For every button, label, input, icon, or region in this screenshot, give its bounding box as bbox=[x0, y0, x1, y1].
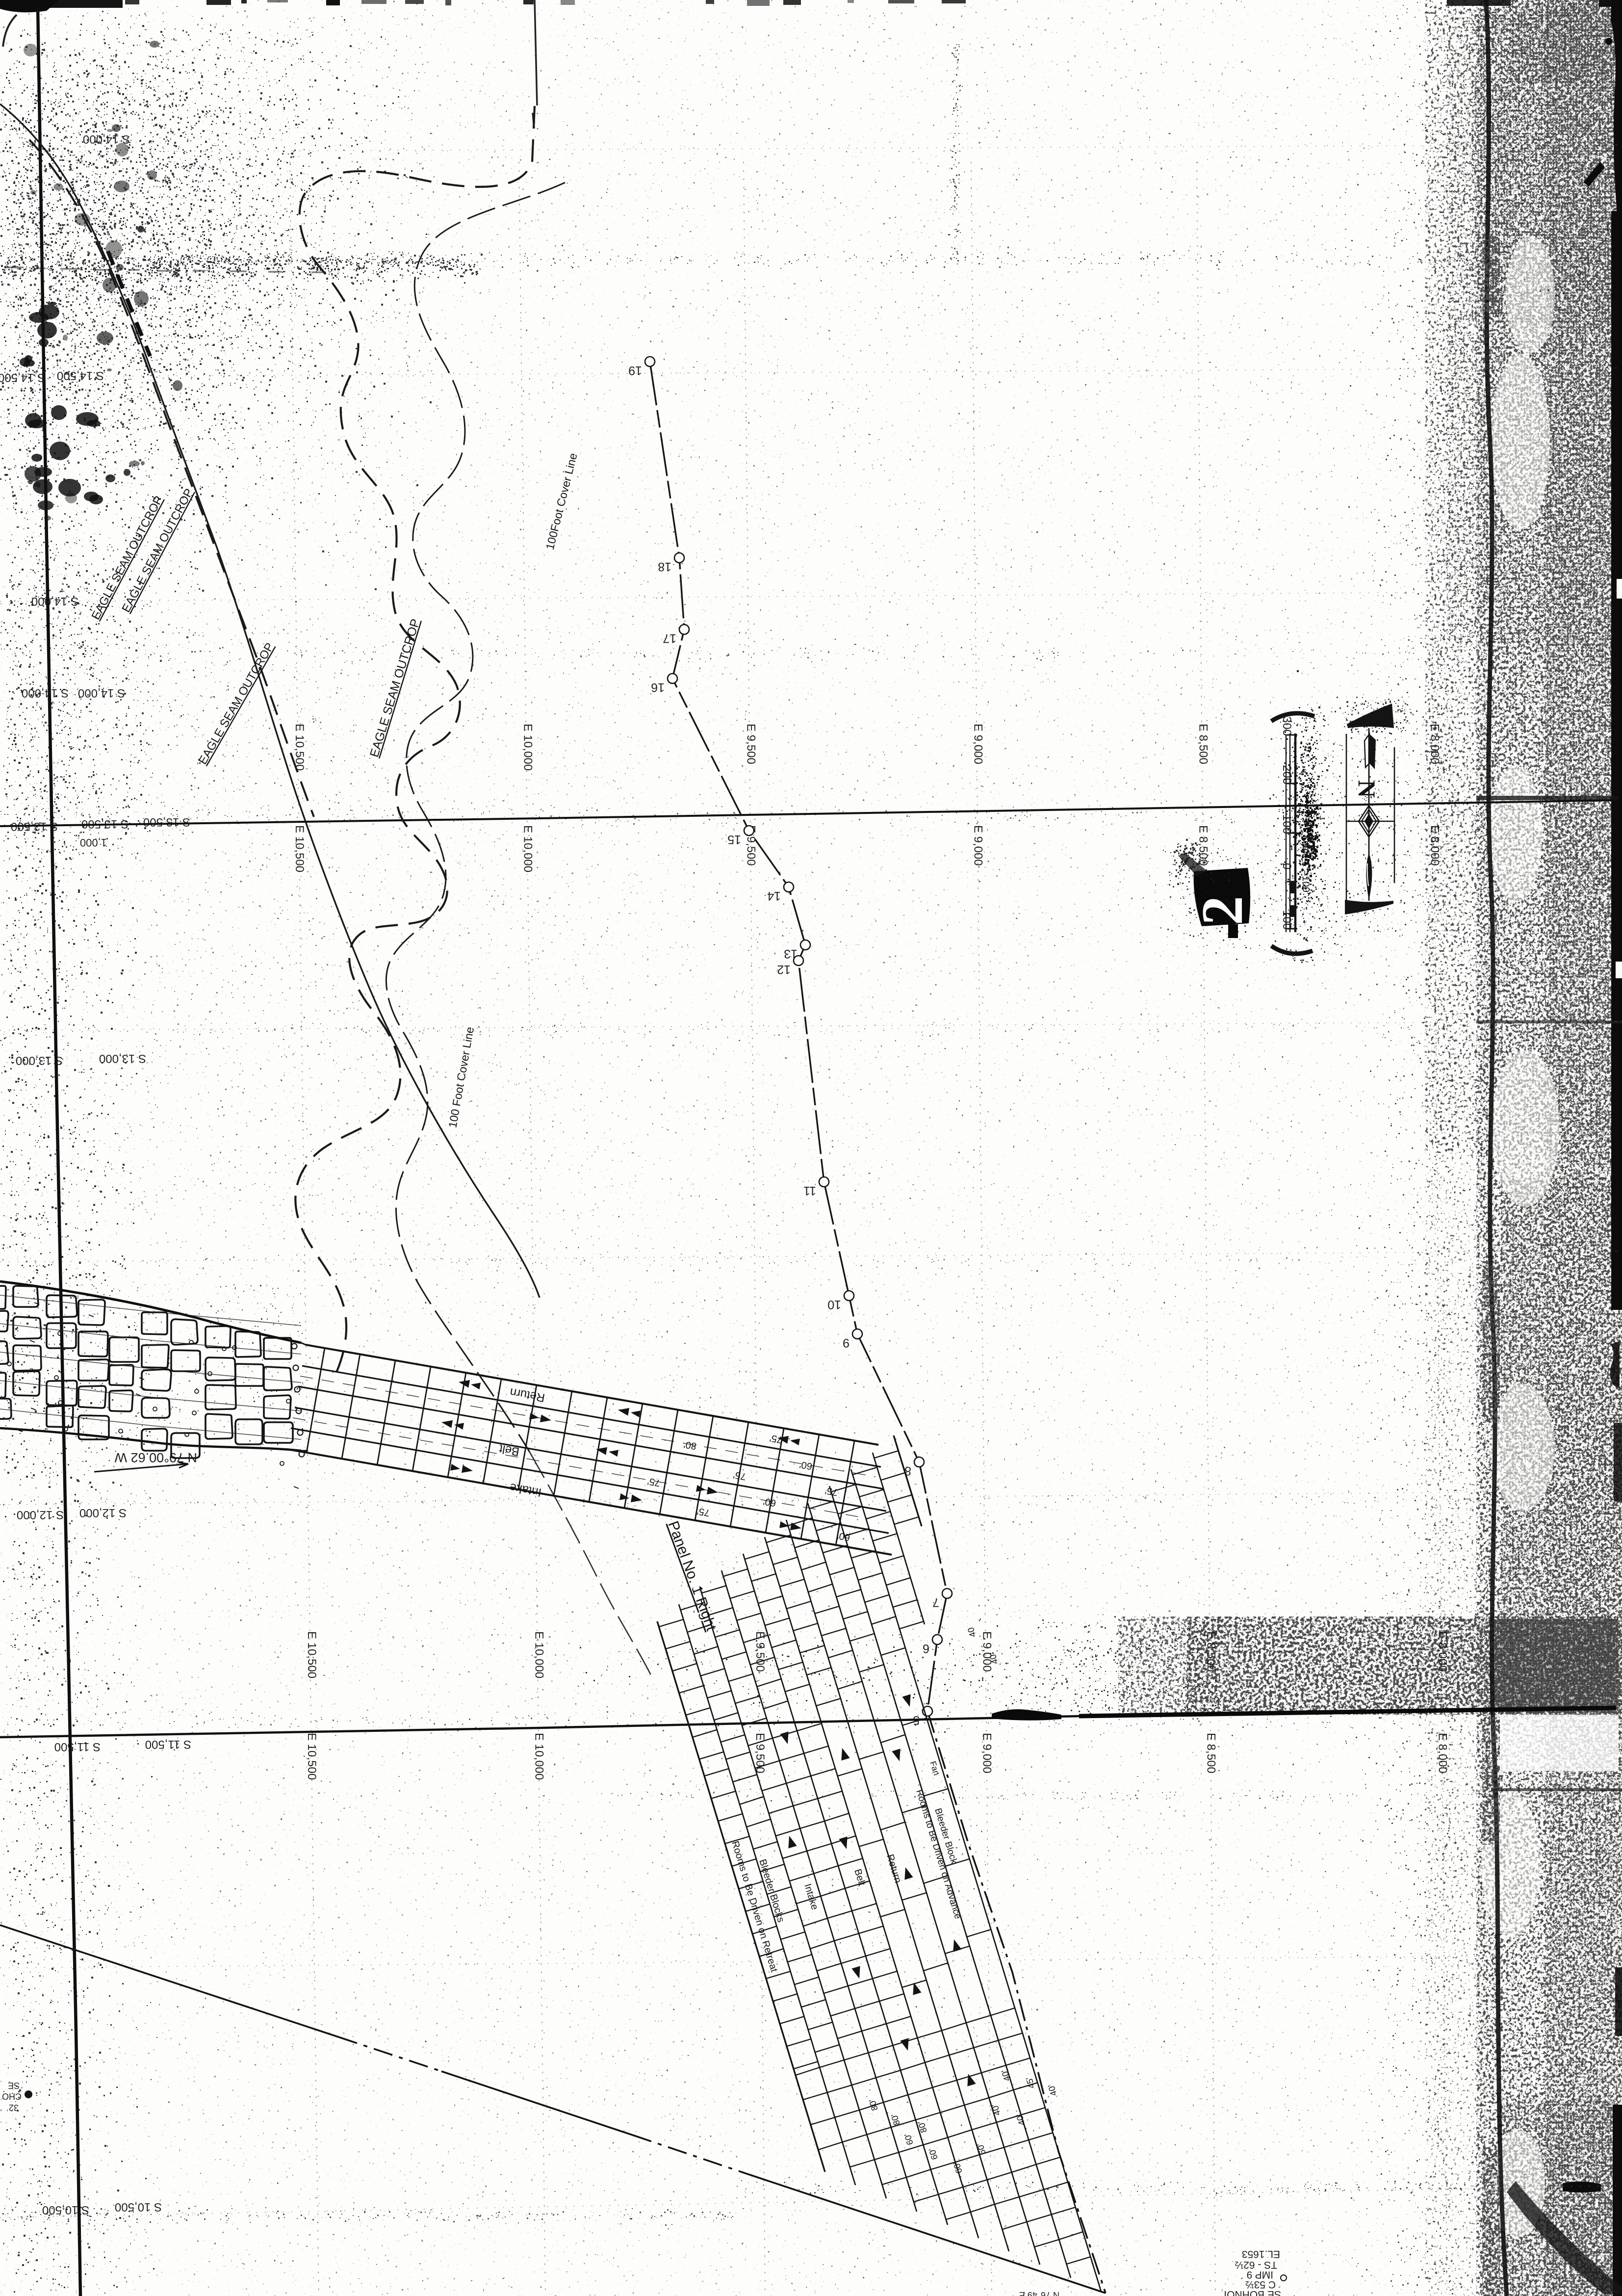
svg-text:6: 6 bbox=[923, 1642, 929, 1655]
svg-text:1,000: 1,000 bbox=[80, 836, 107, 849]
svg-text:18: 18 bbox=[658, 560, 671, 574]
svg-text:Scale 1″=100′: Scale 1″=100′ bbox=[1300, 834, 1311, 894]
svg-text:9: 9 bbox=[843, 1336, 850, 1350]
svg-text:100: 100 bbox=[1280, 814, 1293, 834]
svg-text:S 13,500: S 13,500 bbox=[143, 815, 190, 829]
svg-text:10: 10 bbox=[827, 1298, 841, 1311]
svg-text:E 8,000: E 8,000 bbox=[1436, 1733, 1449, 1774]
svg-text:E 9,000: E 9,000 bbox=[972, 825, 985, 866]
svg-text:7: 7 bbox=[932, 1595, 939, 1609]
svg-text:CHO: CHO bbox=[2, 2091, 22, 2101]
svg-text:N: N bbox=[1353, 780, 1381, 798]
svg-text:E 8,000: E 8,000 bbox=[1428, 724, 1442, 764]
svg-text:60': 60' bbox=[762, 1496, 776, 1509]
svg-text:E 8,500: E 8,500 bbox=[1205, 1733, 1218, 1774]
svg-text:E 10,000: E 10,000 bbox=[532, 1631, 545, 1678]
svg-text:75': 75' bbox=[696, 1506, 710, 1518]
svg-text:E 8,500: E 8,500 bbox=[1197, 724, 1210, 764]
svg-text:TS - 62½: TS - 62½ bbox=[1235, 2259, 1277, 2270]
svg-text:S 14,000: S 14,000 bbox=[22, 686, 69, 700]
svg-text:75': 75' bbox=[732, 1469, 747, 1482]
svg-text:S 13,500: S 13,500 bbox=[81, 817, 129, 831]
svg-text:S 13,500: S 13,500 bbox=[11, 820, 58, 833]
svg-text:E 10,000: E 10,000 bbox=[521, 825, 534, 872]
svg-text:S 13,000: S 13,000 bbox=[99, 1052, 146, 1065]
svg-text:E 8,500: E 8,500 bbox=[1205, 1631, 1218, 1672]
svg-text:E 10,000: E 10,000 bbox=[532, 1733, 545, 1780]
svg-text:0: 0 bbox=[1280, 863, 1293, 869]
svg-text:SE: SE bbox=[8, 2081, 20, 2090]
svg-text:S 12,000: S 12,000 bbox=[79, 1506, 127, 1519]
svg-text:E 10,500: E 10,500 bbox=[305, 1631, 318, 1678]
svg-text:E 9,000: E 9,000 bbox=[972, 724, 985, 764]
svg-text:E 10,000: E 10,000 bbox=[521, 724, 534, 771]
svg-text:E 8,000: E 8,000 bbox=[1436, 1631, 1449, 1672]
svg-text:E 10,500: E 10,500 bbox=[305, 1733, 318, 1780]
svg-text:19: 19 bbox=[628, 364, 642, 377]
svg-text:E 8,000: E 8,000 bbox=[1428, 825, 1442, 866]
svg-text:32: 32 bbox=[9, 2103, 19, 2113]
svg-text:S 12,000: S 12,000 bbox=[17, 1508, 64, 1521]
svg-text:EL.1653: EL.1653 bbox=[1242, 2248, 1280, 2260]
svg-text:S 11,500: S 11,500 bbox=[145, 1738, 191, 1751]
svg-text:300: 300 bbox=[1280, 716, 1293, 736]
svg-text:E 10,500: E 10,500 bbox=[293, 825, 306, 872]
svg-text:S 14,500: S 14,500 bbox=[57, 369, 104, 382]
svg-text:75': 75' bbox=[769, 1433, 783, 1445]
svg-text:17: 17 bbox=[663, 631, 676, 645]
svg-text:E 9,000: E 9,000 bbox=[980, 1631, 994, 1672]
svg-text:E 8,500: E 8,500 bbox=[1197, 825, 1210, 866]
svg-text:15: 15 bbox=[727, 833, 741, 846]
svg-text:S 14,000: S 14,000 bbox=[31, 595, 78, 608]
svg-text:S 10,500: S 10,500 bbox=[115, 2200, 162, 2214]
svg-text:C 53½: C 53½ bbox=[1245, 2279, 1276, 2290]
svg-text:S 11,500: S 11,500 bbox=[54, 1740, 101, 1753]
svg-text:E 9,000: E 9,000 bbox=[980, 1733, 994, 1774]
svg-text:E 9,500: E 9,500 bbox=[744, 724, 757, 764]
svg-text:S 14,500: S 14,500 bbox=[0, 371, 45, 384]
svg-text:N 79°00.62 W: N 79°00.62 W bbox=[114, 1450, 197, 1465]
svg-text:SE BOHNOI: SE BOHNOI bbox=[1224, 2289, 1281, 2296]
svg-text:S 14,000: S 14,000 bbox=[78, 686, 125, 700]
svg-text:IMP 9: IMP 9 bbox=[1247, 2269, 1273, 2280]
svg-text:11: 11 bbox=[803, 1184, 816, 1198]
svg-text:200: 200 bbox=[1280, 765, 1293, 784]
svg-text:S 10,500: S 10,500 bbox=[42, 2203, 89, 2217]
svg-text:S 13,000: S 13,000 bbox=[16, 1054, 63, 1067]
svg-text:14: 14 bbox=[767, 889, 781, 903]
svg-text:12: 12 bbox=[777, 963, 791, 976]
svg-text:N 76°49 E: N 76°49 E bbox=[1019, 2290, 1059, 2296]
svg-text:16: 16 bbox=[651, 680, 665, 694]
svg-text:S 14,000: S 14,000 bbox=[83, 132, 130, 146]
svg-text:2: 2 bbox=[1189, 896, 1255, 925]
